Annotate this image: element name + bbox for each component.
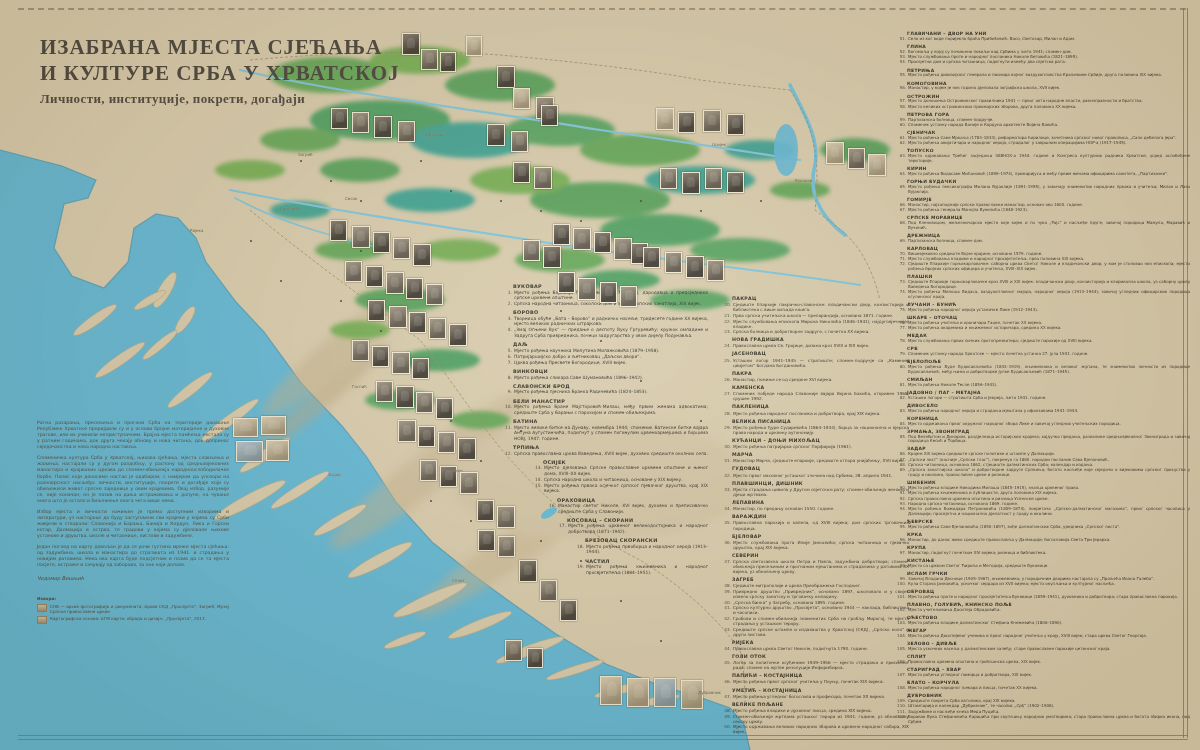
site-dot <box>450 420 452 422</box>
memory-site-entry: 39.Привредно друштво „Привредник“, основ… <box>722 589 909 599</box>
photo-thumbnail <box>523 240 540 261</box>
entry-text: Усташки логор 1941–1945 — стратиште; спо… <box>733 358 909 368</box>
entry-number: 47. <box>722 694 733 699</box>
photo-thumbnail <box>421 49 438 70</box>
photo-thumbnail <box>654 678 676 707</box>
site-dot <box>600 340 602 342</box>
site-dot <box>520 430 522 432</box>
list-column-slavonia: ВУКОВАР1.Мјесто рођења Боривоја Пушкарев… <box>503 283 708 578</box>
entry-text: Партизанска болница, спомен-дом. <box>908 239 1190 244</box>
place-section: ВЕЛИКА ПИСАНИЦА29.Мјесто рођења Ђуре Суд… <box>722 419 909 435</box>
entry-text: Мјесто одржавања великих народних зборов… <box>733 724 909 734</box>
entry-text: Мјесто рођења генерала Манојла Вукелића … <box>908 208 1190 213</box>
entry-text: Мјесто рођења књижевника и народног прос… <box>586 564 708 575</box>
place-heading: ЧАСТИЛ <box>585 558 708 564</box>
entry-text: Мјесто рођења авијатичара и народног хер… <box>908 141 1190 146</box>
photo-thumbnail <box>233 418 258 437</box>
site-dot <box>380 330 382 332</box>
photo-thumbnail <box>573 228 591 250</box>
place-section: ГОМИРЈЕ66.Манастир, најзападнији српски … <box>897 197 1190 213</box>
entry-number: 22. <box>722 319 733 329</box>
source-text: СНВ — архив фотографија и докумената; Ар… <box>50 604 229 615</box>
memory-site-entry: 11.Мјесто велике битке на Дунаву, новемб… <box>503 425 708 441</box>
place-heading: ТРПИЊА <box>513 444 708 450</box>
entry-text: „Српска банка“ у Загребу, основана 1895.… <box>733 600 909 605</box>
photo-thumbnail <box>868 154 886 176</box>
entry-number: 83. <box>897 409 908 414</box>
site-dot <box>540 540 542 542</box>
entry-text: Кула Стојана Јанковића, ускочког сердара… <box>908 582 1190 587</box>
double-line-border-bottom <box>18 735 1188 740</box>
photo-thumbnail <box>513 88 530 109</box>
place-section: ПАКЛЕНИЦА28.Мјесто рођења народног посла… <box>722 404 909 415</box>
entry-number: 30. <box>722 444 733 449</box>
memory-site-entry: 28.Мјесто рођења народног посланика и до… <box>722 411 909 416</box>
place-heading: ПАКРАЦ <box>732 296 909 302</box>
entry-text: Мјесто дјеловања Српске православне цркв… <box>544 465 708 476</box>
memory-site-entry: 33.Мјеста страдања цивила у Другом свјет… <box>722 487 909 497</box>
entry-text: Православна црква Св. Тројице, дизана кр… <box>733 343 909 348</box>
entry-number: 17. <box>557 523 568 534</box>
photo-thumbnail <box>372 346 389 367</box>
entry-number: 95. <box>897 525 908 530</box>
memory-site-entry: 49.Спомен-обиљежје жртвама усташког теро… <box>722 714 909 724</box>
memory-site-entry: 65.Мјесто рођења лексикографа Милана Вуј… <box>897 185 1190 194</box>
city-label: Ријека <box>190 228 203 233</box>
place-heading: БАТИНА <box>513 418 708 424</box>
memory-site-entry: 51.Село из ког воде поријекло браћа Приб… <box>897 37 1190 42</box>
site-dot <box>620 600 622 602</box>
entry-text: Спомен-обиљежје жртвама усташког терора … <box>733 714 909 724</box>
entry-number: 43. <box>722 627 733 637</box>
photo-thumbnail <box>398 121 415 142</box>
entry-text: Мјеста страдања цивила у Другом свјетско… <box>733 487 909 497</box>
memory-site-entry: 37.Српска светосавска школа Петра и Павл… <box>722 559 909 574</box>
entry-number: 38. <box>722 583 733 588</box>
site-dot <box>300 160 302 162</box>
list-column-right: ГЛАВИЧАНИ – ДВОР НА УНИ51.Село из ког во… <box>897 31 1190 727</box>
memory-site-entry: 72.Сједиште Епархије горњокарловачке: са… <box>897 262 1190 271</box>
entry-number: 44. <box>722 646 733 651</box>
place-section: ОЋЕСТОВО103.Мјесто рођења владике далмат… <box>897 615 1190 626</box>
entry-text: Мјесто рођења првака осјечког српског пј… <box>544 483 708 494</box>
title-block: ИЗАБРАНА МЈЕСТА СЈЕЋАЊА И КУЛТУРЕ СРБА У… <box>40 34 440 107</box>
memory-site-entry: 30.Мјесто рођења патријарха српског Порф… <box>722 444 909 449</box>
entry-text: Мјесто рођења дивизијског генерала и пио… <box>908 73 1190 78</box>
memory-site-entry: 67.Мјесто рођења генерала Манојла Вукели… <box>897 208 1190 213</box>
memory-site-entry: 22.Мјесто службовања епископа Мирона Ник… <box>722 319 909 329</box>
memory-site-entry: 101.Мјесто рођења проте и народног просв… <box>897 595 1190 600</box>
memory-site-entry: 79.Споменик устанку народа Хрватске — мј… <box>897 352 1190 357</box>
memory-site-entry: 5.Мјесто рођења научника Милутина Миланк… <box>503 348 708 353</box>
place-section: ОБРОВАЦ101.Мјесто рођења проте и народно… <box>897 589 1190 600</box>
memory-site-entry: 85.Под Велебитом и Динаром, раздјелница … <box>897 435 1190 444</box>
place-section: ДРЕЖНИЦА69.Партизанска болница, спомен-д… <box>897 233 1190 244</box>
photo-thumbnail <box>396 386 414 408</box>
stitched-border-top <box>18 8 1186 10</box>
photo-thumbnail <box>449 324 467 346</box>
entry-number: 37. <box>722 559 733 574</box>
entry-number: 78. <box>897 339 908 344</box>
entry-number: 31. <box>722 458 733 463</box>
memory-site-entry: 15.Мјесто рођења првака осјечког српског… <box>533 483 708 494</box>
entry-number: 68. <box>897 221 908 230</box>
site-dot <box>640 200 642 202</box>
entry-text: Под Велебитом и Динаром, раздјелница ист… <box>908 435 1190 444</box>
entry-text: Усташки логори — стратишта Срба и Јевреј… <box>908 396 1190 401</box>
photo-thumbnail <box>426 284 443 305</box>
site-dot <box>470 520 472 522</box>
place-heading: НОВА ГРАДИШКА <box>732 337 909 343</box>
city-label: Бјеловар <box>425 132 444 137</box>
photo-thumbnail <box>543 246 561 268</box>
entry-text: Мјесто рођења Видосаве Мићановић (1899–1… <box>908 172 1190 177</box>
memory-site-entry: 60.Споменик устанку народа Баније и Корд… <box>897 123 1190 128</box>
entry-number: 58. <box>897 105 908 110</box>
memory-site-entry: 38.Сједиште митрополије и црква Преображ… <box>722 583 909 588</box>
place-section: СРБ79.Споменик устанку народа Хрватске —… <box>897 346 1190 357</box>
photo-thumbnail <box>727 172 744 193</box>
entry-text: Православна црквена општина и гробљанска… <box>908 660 1190 665</box>
entry-text: Мјесто одржавања првог окружног народног… <box>908 422 1190 427</box>
memory-site-entry: 34.Манастир, по предању основан 1550. го… <box>722 506 909 511</box>
entry-text: Мјесто великих острожинских првомајских … <box>908 105 1190 110</box>
place-section: ПАКРА26.Манастир, помиње се од средине X… <box>722 371 909 382</box>
photo-thumbnail <box>487 124 505 146</box>
place-heading: КУЋАНЦИ – ДОЊИ МИХОЉАЦ <box>732 438 909 444</box>
memory-site-entry: 45.Логор за политичке осуђенике 1949–195… <box>722 660 909 670</box>
intro-paragraph-1: Ратна разарања, пресељења и прогони Срба… <box>37 420 229 450</box>
entry-text: Мјеста учитељевања Доситеја Обрадовића. <box>908 608 1190 613</box>
photo-thumbnail <box>505 640 522 661</box>
memory-site-entry: 21.Прва српска учитељска школа — препара… <box>722 313 909 318</box>
site-dot <box>360 250 362 252</box>
place-section: КАМЕНСКА27.Споменик побједе народа Славо… <box>722 385 909 401</box>
memory-site-entry: 89.„Српска занатлијска школа“ и добротво… <box>897 468 1190 477</box>
entry-text: Мјесто рођења лексикографа Милана Вујакл… <box>908 185 1190 194</box>
photo-thumbnail <box>413 244 431 266</box>
place-section: БЛАТО – КОРЧУЛА108.Мјесто рођења народно… <box>897 680 1190 691</box>
entry-number: 13. <box>533 465 544 476</box>
signature: Чедомир Вишњић <box>37 575 229 582</box>
entry-number: 2. <box>503 301 514 306</box>
site-dot <box>500 200 502 202</box>
place-section: ГЛИНА52.Богомоља у којој су почињени пок… <box>897 44 1190 65</box>
place-section: ПАПИЋИ – КОСТАЈНИЦА46.Мјесто рођења прво… <box>722 673 909 684</box>
entry-number: 79. <box>897 352 908 357</box>
entry-text: Мјесто службовања првих личких протопрез… <box>908 339 1190 344</box>
intro-paragraph-3: Избор мјеста и личности начињен је према… <box>37 509 229 539</box>
entry-text: Манастир светог Николе, XVI вијек, духов… <box>558 503 708 514</box>
place-section: БЈЕЛОВАР36.Мјесто службовања прота Илије… <box>722 534 909 550</box>
place-section: СЛАВОНСКИ БРОД9.Мјесто рођења пјесника Б… <box>503 383 708 395</box>
place-section: ЗРМАЊА, ЗВОНИГРАД85.Под Велебитом и Дина… <box>897 429 1190 444</box>
entry-number: 8. <box>503 375 514 380</box>
memory-site-entry: 6.Патријаршијско добро и љетниковац „Даљ… <box>503 354 708 359</box>
photo-thumbnail <box>393 238 410 259</box>
memory-site-entry: 20.Сједиште Епархије пакрачко-славонске:… <box>722 302 909 312</box>
photo-thumbnail <box>458 438 476 460</box>
memory-site-entry: 35.Православна парохија и капела, од XVI… <box>722 520 909 530</box>
photo-thumbnail <box>352 112 369 133</box>
entry-number: 23. <box>722 329 733 334</box>
place-heading: БОРОВО <box>513 309 708 315</box>
photo-thumbnail <box>261 416 286 435</box>
entry-number: 10. <box>503 404 514 415</box>
photo-thumbnail <box>330 220 347 241</box>
entry-text: Мјесто рођења народног посланика и добро… <box>733 411 909 416</box>
entry-text: Мјесто рођења владике и духовног писца, … <box>733 708 909 713</box>
photo-thumbnail <box>412 358 429 379</box>
photo-thumbnail <box>540 580 557 601</box>
place-section: МЕДАК78.Мјесто службовања првих личких п… <box>897 333 1190 344</box>
place-section: КОСОВАЦ – СКОРАНИ17.Мјесто рођења црквен… <box>557 517 708 534</box>
entry-number: 48. <box>722 708 733 713</box>
place-section: ЗАДАР86.Крајем XIX вијека средиште српск… <box>897 446 1190 477</box>
entry-text: Мјесто рођења првоборца и народног херој… <box>586 544 708 555</box>
photo-thumbnail <box>440 52 456 72</box>
photo-thumbnail <box>519 560 537 582</box>
place-section: МАРЧА31.Манастир Марча, сједиште епархиј… <box>722 452 909 463</box>
entry-text: Логор за политичке осуђенике 1949–1956 —… <box>733 660 909 670</box>
site-dot <box>700 420 702 422</box>
entry-number: 56. <box>897 86 908 91</box>
place-section: ОСТРОЖИН57.Мјесто доношења Острожинског … <box>897 94 1190 110</box>
memory-site-entry: 50.Мјесто одржавања великих народних збо… <box>722 724 909 734</box>
site-dot <box>700 210 702 212</box>
memory-site-entry: 36.Мјесто службовања прота Илије Јанкови… <box>722 540 909 550</box>
place-heading: БЈЕЛОВАР <box>732 534 909 540</box>
photo-thumbnail <box>627 678 649 707</box>
entry-number: 46. <box>722 679 733 684</box>
photo-thumbnail <box>402 33 420 55</box>
place-heading: СЛАВОНСКИ БРОД <box>513 383 708 389</box>
entry-text: Боравак Вука Стефановића Караџића при ск… <box>908 715 1190 724</box>
entry-number: 3. <box>503 316 514 327</box>
memory-site-entry: 62.Мјесто рођења авијатичара и народног … <box>897 141 1190 146</box>
entry-number: 82. <box>897 396 908 401</box>
place-section: ПЛАВНО, ГОЛУБИЋ, КНИНСКО ПОЉЕ102.Мјеста … <box>897 602 1190 613</box>
entry-text: Мјесто рођења Ђуре Сударевића (1864–1934… <box>733 425 909 435</box>
memory-site-entry: 105.Мјеста ускочких насеља у далматинско… <box>897 647 1190 652</box>
place-section: СМИЉАН81.Мјесто рођења Николе Тесле (185… <box>897 377 1190 388</box>
place-section: КОМОГОВИНА56.Манастир, у којем је низ го… <box>897 81 1190 92</box>
entry-text: Мјесто рођења патријарха српског Порфири… <box>733 444 909 449</box>
entry-text: Мјесто рођења владике далматинског Стефа… <box>908 621 1190 626</box>
place-heading: КАМЕНСКА <box>732 385 909 391</box>
place-section: КУЋАНЦИ – ДОЊИ МИХОЉАЦ30.Мјесто рођења п… <box>722 438 909 449</box>
entry-number: 94. <box>897 507 908 516</box>
place-heading: ПАКРА <box>732 371 909 377</box>
memory-site-entry: 42.Гробови и спомен-обиљежја знаменитих … <box>722 616 909 626</box>
site-dot <box>540 210 542 212</box>
entry-number: 97. <box>897 551 908 556</box>
place-heading: МАРЧА <box>732 452 909 458</box>
entry-text: Мјесто рођења Доситејевог ученика и прво… <box>908 634 1190 639</box>
photo-thumbnail <box>392 352 410 374</box>
place-heading: РИЈЕКА <box>732 640 909 646</box>
entry-number: 104. <box>897 634 908 639</box>
memory-site-entry: 77.Мјесто рођења академика и књижевног и… <box>897 326 1190 331</box>
photo-thumbnail <box>345 261 362 282</box>
place-section: ДАЉ5.Мјесто рођења научника Милутина Мил… <box>503 341 708 365</box>
memory-site-entry: 7.Црква рођења Пресвете Богородице, XVII… <box>503 360 708 365</box>
place-heading: ЗАГРЕБ <box>732 577 909 583</box>
site-dot <box>580 560 582 562</box>
city-label: Сплит <box>452 578 465 583</box>
memory-site-entry: 27.Споменик побједе народа Славоније вај… <box>722 391 909 401</box>
place-section: ИСЛАМ ГРЧКИ99.Завичај Владана Деснице (1… <box>897 571 1190 587</box>
place-section: БАТИНА11.Мјесто велике битке на Дунаву, … <box>503 418 708 441</box>
kopacki-rit <box>774 124 798 176</box>
memory-site-entry: 58.Мјесто великих острожинских првомајск… <box>897 105 1190 110</box>
entry-text: Мјесто рођења народног хероја устаничке … <box>908 308 1190 313</box>
entry-text: Мјеста ускочких насеља у далматинском за… <box>908 647 1190 652</box>
photo-thumbnail <box>429 318 446 339</box>
place-section: ЗЕЛОВО – ДИВЉЕ105.Мјеста ускочких насеља… <box>897 641 1190 652</box>
memory-site-entry: 9.Мјесто рођења пјесника Бранка Радичеви… <box>503 389 708 394</box>
photo-thumbnail <box>707 260 724 281</box>
memory-site-entry: 14.Српска народна школа и читаоница, осн… <box>533 477 708 482</box>
memory-site-entry: 73.Сједиште Епархије горњокарловачке кро… <box>897 280 1190 289</box>
entry-number: 45. <box>722 660 733 670</box>
place-section: СПЛИТ106.Православна црквена општина и г… <box>897 654 1190 665</box>
place-section: ВЕЛИКЕ ПОЉАНЕ48.Мјесто рођења владике и … <box>722 702 909 735</box>
place-section: ЈАДОВНО / ПАГ – МЕТАЈНА82.Усташки логори… <box>897 390 1190 401</box>
entry-number: 105. <box>897 647 908 652</box>
entry-number: 74. <box>897 290 908 299</box>
entry-text: Мјесто рођења угледног поморца и добротв… <box>908 673 1190 678</box>
place-heading: ЈАСЕНОВАЦ <box>732 351 909 357</box>
photo-thumbnail <box>703 110 721 132</box>
entry-number: 77. <box>897 326 908 331</box>
site-dot <box>760 200 762 202</box>
entry-text: Мјесто са црквом Светог Ћирила и Методиј… <box>908 564 1190 569</box>
entry-number: 6. <box>503 354 514 359</box>
memory-site-entry: 26.Манастир, помиње се од средине XVI ви… <box>722 377 909 382</box>
entry-text: Патријаршијско добро и љетниковац „Даљск… <box>514 354 708 359</box>
memory-site-entry: 47.Мјесто рођења угледног богослова и пр… <box>722 694 909 699</box>
entry-number: 26. <box>722 377 733 382</box>
city-label: Дубровник <box>698 690 721 695</box>
place-heading: ВЕЛИКА ПИСАНИЦА <box>732 419 909 425</box>
place-section: СРПСКЕ МОРАВИЦЕ68.Под Кленовицом, жељезн… <box>897 215 1190 230</box>
entry-number: 36. <box>722 540 733 550</box>
place-section: НОВА ГРАДИШКА24.Православна црква Св. Тр… <box>722 337 909 348</box>
photo-thumbnail <box>477 500 494 521</box>
entry-number: 40. <box>722 600 733 605</box>
memory-site-entry: 44.Православна црква Светог Николе, поди… <box>722 646 909 651</box>
place-section: ОРАХОВИЦА16.Манастир светог Николе, XVI … <box>547 497 708 514</box>
entry-number: 41. <box>722 605 733 615</box>
entry-text: Мјесто рођења научника Милутина Миланков… <box>514 348 708 353</box>
entry-number: 102. <box>897 608 908 613</box>
entry-number: 89. <box>897 468 908 477</box>
place-section: КАРЛОВАЦ70.Вишевјековно средиште Војне к… <box>897 246 1190 272</box>
place-heading: СЕВЕРИН <box>732 553 909 559</box>
photo-thumbnail <box>389 306 407 328</box>
place-heading: ОРАХОВИЦА <box>557 497 708 503</box>
entry-text: Мјесто рођења проте и народног просвјети… <box>908 595 1190 600</box>
site-dot <box>420 160 422 162</box>
place-heading: ПАПИЋИ – КОСТАЈНИЦА <box>732 673 909 679</box>
photo-thumbnail <box>527 648 543 668</box>
photo-thumbnail <box>620 286 637 307</box>
entry-text: Мјесто рођења угледног богослова и профе… <box>733 694 909 699</box>
entry-number: 96. <box>897 538 908 543</box>
entry-number: 5. <box>503 348 514 353</box>
place-section: ШКАРЕ – ОТОЧАЦ76.Мјесто рођења учитеља и… <box>897 315 1190 331</box>
place-section: ЈАСЕНОВАЦ25.Усташки логор 1941–1945 — ст… <box>722 351 909 367</box>
place-section: ЖЕГАР104.Мјесто рођења Доситејевог учени… <box>897 628 1190 639</box>
entry-text: Српска народна школа и читаоница, основа… <box>544 477 708 482</box>
memory-site-entry: 29.Мјесто рођења Ђуре Сударевића (1864–1… <box>722 425 909 435</box>
memory-site-entry: 69.Партизанска болница, спомен-дом. <box>897 239 1190 244</box>
place-section: ПАКРАЦ20.Сједиште Епархије пакрачко-слав… <box>722 296 909 334</box>
photo-thumbnail <box>665 252 682 273</box>
entry-text: Мјесто рођења црквеног великодостојника … <box>568 523 708 534</box>
city-label: Сисак <box>345 196 357 201</box>
memory-site-entry: 96.Манастир, до данас живо средиште прав… <box>897 538 1190 543</box>
place-heading: КОСОВАЦ – СКОРАНИ <box>567 517 708 523</box>
photo-thumbnail <box>511 131 528 152</box>
entry-number: 69. <box>897 239 908 244</box>
place-section: ГОРЊИ БУДАЧКИ65.Мјесто рођења лексикогра… <box>897 179 1190 194</box>
place-heading: ГОЛИ ОТОК <box>732 654 909 660</box>
entry-text: Село из ког воде поријекло браћа Прибиће… <box>908 37 1190 42</box>
photo-thumbnail <box>438 432 455 453</box>
page-title: ИЗАБРАНА МЈЕСТА СЈЕЋАЊА И КУЛТУРЕ СРБА У… <box>40 34 440 87</box>
entry-text: Мјесто првог масовног усташког злочина н… <box>733 473 909 478</box>
photo-thumbnail <box>656 108 674 130</box>
place-section: БРЕЗОВАЦ СКОРАНСКИ18.Мјесто рођења првоб… <box>575 537 708 554</box>
photo-thumbnail <box>406 278 423 299</box>
entry-number: 39. <box>722 589 733 599</box>
entry-text: Сједиште Епархије горњокарловачке кроз X… <box>908 280 1190 289</box>
site-dot <box>250 240 252 242</box>
poster: ИЗАБРАНА МЈЕСТА СЈЕЋАЊА И КУЛТУРЕ СРБА У… <box>0 0 1200 750</box>
photo-thumbnail <box>478 530 495 551</box>
memory-site-entry: 102.Мјеста учитељевања Доситеја Обрадови… <box>897 608 1190 613</box>
entry-number: 18. <box>575 544 586 555</box>
photo-thumbnail <box>374 116 392 138</box>
place-section: ТРПИЊА12.Српска православна црква Ваведе… <box>503 444 708 456</box>
place-section: ПЕТРИЊА55.Мјесто рођења дивизијског гене… <box>897 68 1190 79</box>
memory-site-entry: 107.Мјесто рођења угледног поморца и доб… <box>897 673 1190 678</box>
photo-thumbnail <box>826 142 844 164</box>
memory-site-entry: 106.Православна црквена општина и гробља… <box>897 660 1190 665</box>
place-section: ВАРАЖДИН35.Православна парохија и капела… <box>722 514 909 530</box>
site-dot <box>280 280 282 282</box>
entry-text: Прва српска учитељска школа — препаранди… <box>733 313 909 318</box>
entry-text: Споменик побједе народа Славоније вајара… <box>733 391 909 401</box>
entry-text: Сједиште митрополије и црква Преображења… <box>733 583 909 588</box>
memory-site-entry: 95.Мјесто рођења Саве Бјелановића (1850–… <box>897 525 1190 530</box>
entry-number: 100. <box>897 582 908 587</box>
site-dot <box>660 640 662 642</box>
entry-number: 98. <box>897 564 908 569</box>
site-dot <box>330 180 332 182</box>
memory-site-entry: 84.Мјесто одржавања првог окружног народ… <box>897 422 1190 427</box>
entry-text: Манастир, по предању основан 1550. годин… <box>733 506 909 511</box>
memory-site-entry: 43.Средиште српске штампе и издаваштва у… <box>722 627 909 637</box>
entry-number: 107. <box>897 673 908 678</box>
entry-number: 16. <box>547 503 558 514</box>
photo-thumbnail <box>600 282 617 303</box>
memory-site-entry: 104.Мјесто рођења Доситејевог ученика и … <box>897 634 1190 639</box>
photo-thumbnail <box>420 460 437 481</box>
entry-text: Мјесто рођења Николе Тесле (1856–1943). <box>908 383 1190 388</box>
